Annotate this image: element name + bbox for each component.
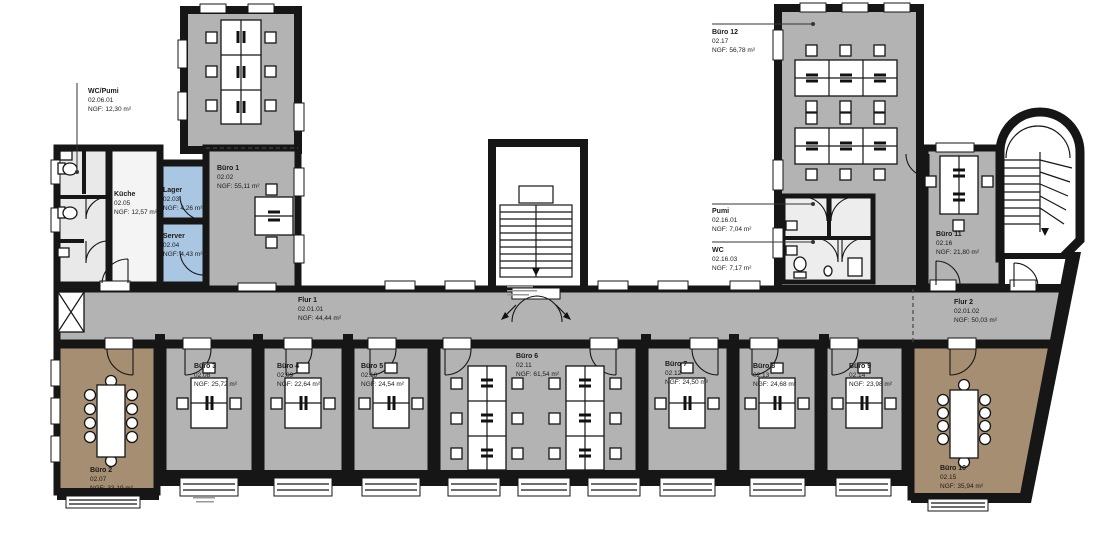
room-number: 02.10	[361, 371, 404, 380]
room-number: 02.08	[194, 371, 237, 380]
room-area: NGF: 55,11 m²	[217, 182, 260, 191]
room-area: NGF: 24,68 m²	[753, 380, 796, 389]
room-name: WC/Pumi	[88, 87, 131, 96]
room-number: 02.05	[114, 199, 157, 208]
room-area: NGF: 56,78 m²	[712, 46, 755, 55]
room-name: Büro 9	[849, 362, 892, 371]
label-buero9: Büro 902.14NGF: 23,98 m²	[849, 362, 892, 389]
room-number: 02.13	[753, 371, 796, 380]
label-buero5: Büro 502.10NGF: 24,54 m²	[361, 362, 404, 389]
room-area: NGF: 25,72 m²	[194, 380, 237, 389]
label-pumi: Pumi02.16.01NGF: 7,04 m²	[712, 207, 751, 234]
label-buero4: Büro 402.09NGF: 22,64 m²	[277, 362, 320, 389]
stair-entrance-opening	[512, 288, 560, 299]
room-number: 02.17	[712, 37, 755, 46]
room-area: NGF: 33,19 m²	[90, 484, 133, 493]
room-area: NGF: 7,17 m²	[712, 264, 751, 273]
room-number: 02.16	[936, 239, 979, 248]
room-area: NGF: 24,54 m²	[361, 380, 404, 389]
toilet-tank	[794, 272, 806, 278]
room-name: Lager	[163, 186, 202, 195]
label-kueche: Küche02.05NGF: 12,57 m²	[114, 190, 157, 217]
label-buero7: Büro 702.12NGF: 24,50 m²	[665, 360, 708, 387]
room-number: 02.16.03	[712, 255, 751, 264]
label-buero1: Büro 102.02NGF: 55,11 m²	[217, 164, 260, 191]
room-area: NGF: 21,80 m²	[936, 248, 979, 257]
room-number: 02.14	[849, 371, 892, 380]
label-flur1: Flur 102.01.01NGF: 44,44 m²	[298, 296, 341, 323]
room-number: 02.15	[940, 473, 983, 482]
buero12-desks	[795, 45, 897, 180]
room-name: Büro 1	[217, 164, 260, 173]
room-number: 02.11	[516, 361, 559, 370]
room-area: NGF: 4,26 m²	[163, 204, 202, 213]
room-name: Büro 4	[277, 362, 320, 371]
room-area: NGF: 24,50 m²	[665, 378, 708, 387]
room-name: Server	[163, 232, 202, 241]
label-buero2: Büro 202.07NGF: 33,19 m²	[90, 466, 133, 493]
room-name: Pumi	[712, 207, 751, 216]
toilet-bowl	[63, 163, 77, 175]
room-name: Büro 10	[940, 464, 983, 473]
floorplan-svg	[0, 0, 1112, 544]
toilet-bowl	[63, 207, 77, 219]
label-flur2: Flur 202.01.02NGF: 50,03 m²	[954, 298, 997, 325]
room-name: Küche	[114, 190, 157, 199]
room-name: Büro 8	[753, 362, 796, 371]
room-number: 02.02	[217, 173, 260, 182]
label-wc-pumi: WC/Pumi02.06.01NGF: 12,30 m²	[88, 87, 131, 114]
toilet-bowl	[794, 257, 806, 271]
room-number: 02.09	[277, 371, 320, 380]
label-server: Server02.04NGF: 4,43 m²	[163, 232, 202, 259]
room-number: 02.06.01	[88, 96, 131, 105]
sink	[58, 248, 69, 257]
room-number: 02.16.01	[712, 216, 751, 225]
room-area: NGF: 4,43 m²	[163, 250, 202, 259]
room-name: Büro 2	[90, 466, 133, 475]
room-number: 02.12	[665, 369, 708, 378]
room-number: 02.01.02	[954, 307, 997, 316]
wc-stall	[848, 258, 862, 276]
sink	[786, 221, 797, 230]
room-area: NGF: 50,03 m²	[954, 316, 997, 325]
room-area: NGF: 61,54 m²	[516, 370, 559, 379]
label-buero10: Büro 1002.15NGF: 35,94 m²	[940, 464, 983, 491]
room-name: Büro 11	[936, 230, 979, 239]
room-area: NGF: 22,64 m²	[277, 380, 320, 389]
label-buero6: Büro 602.11NGF: 61,54 m²	[516, 352, 559, 379]
room-name: Büro 3	[194, 362, 237, 371]
sink	[786, 246, 797, 255]
room-number: 02.04	[163, 241, 202, 250]
room-name: Büro 7	[665, 360, 708, 369]
room-area: NGF: 12,30 m²	[88, 105, 131, 114]
room-area: NGF: 35,94 m²	[940, 482, 983, 491]
sink	[60, 151, 72, 160]
room-area: NGF: 23,98 m²	[849, 380, 892, 389]
label-buero11: Büro 1102.16NGF: 21,80 m²	[936, 230, 979, 257]
room-area: NGF: 7,04 m²	[712, 225, 751, 234]
room-number: 02.07	[90, 475, 133, 484]
room-area: NGF: 12,57 m²	[114, 208, 157, 217]
room-name: Flur 1	[298, 296, 341, 305]
label-buero12: Büro 1202.17NGF: 56,78 m²	[712, 28, 755, 55]
room-name: Büro 6	[516, 352, 559, 361]
label-buero8: Büro 802.13NGF: 24,68 m²	[753, 362, 796, 389]
label-lager: Lager02.03NGF: 4,26 m²	[163, 186, 202, 213]
urinal	[824, 266, 832, 276]
room-name: Büro 12	[712, 28, 755, 37]
room-name: Büro 5	[361, 362, 404, 371]
room-area: NGF: 44,44 m²	[298, 314, 341, 323]
room-name: Flur 2	[954, 298, 997, 307]
label-wc: WC02.16.03NGF: 7,17 m²	[712, 246, 751, 273]
label-buero3: Büro 302.08NGF: 25,72 m²	[194, 362, 237, 389]
room-name: WC	[712, 246, 751, 255]
room-number: 02.03	[163, 195, 202, 204]
floor-plan: WC/Pumi02.06.01NGF: 12,30 m² Büro 1202.1…	[0, 0, 1112, 544]
room-number: 02.01.01	[298, 305, 341, 314]
